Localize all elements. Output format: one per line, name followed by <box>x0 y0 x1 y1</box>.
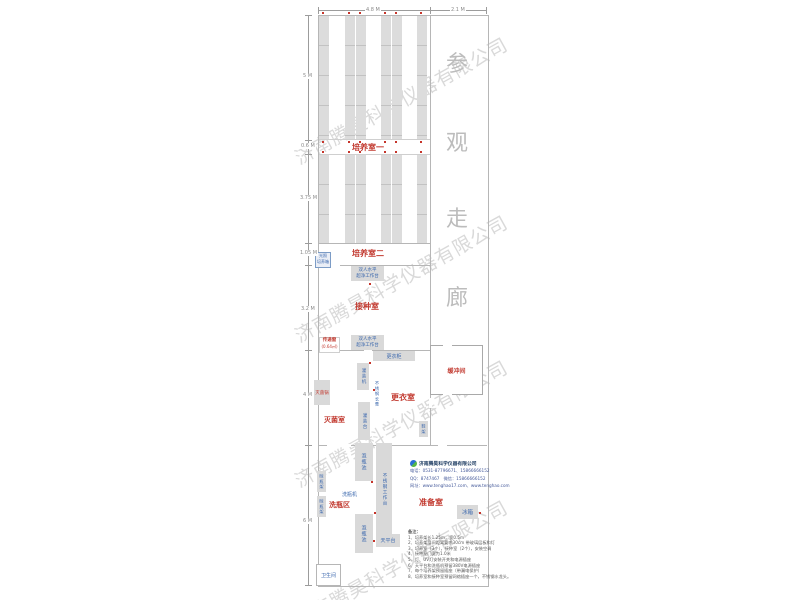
sterilizer-box: 灭菌锅 <box>314 380 330 405</box>
room-label-washing-area: 洗瓶区 <box>329 500 350 510</box>
culture-rack <box>381 155 391 243</box>
clean-bench-box: 双人水平 超净工作台 <box>351 335 384 350</box>
dimension-label-left: 4 M <box>302 392 313 398</box>
dimension-label-top-main: 4.8 M <box>365 7 381 13</box>
drying-rack-box: 晾瓶架 <box>317 471 326 492</box>
marker-dot <box>373 540 375 542</box>
clean-bench-label: 超净工作台 <box>356 274 379 280</box>
dimension-label-left: 1.05 M <box>299 250 318 256</box>
dimension-tick <box>305 243 312 244</box>
corridor-title-char: 观 <box>446 125 468 157</box>
marker-dot <box>348 141 350 143</box>
transfer-window-area-label: (0.64㎡) <box>320 344 339 349</box>
corridor-title-char: 参 <box>446 46 468 78</box>
dimension-tick <box>305 585 312 586</box>
dimension-label-left: 5 M <box>302 73 313 79</box>
marker-dot <box>322 141 324 143</box>
company-name: 济南腾昊科学仪器有限公司 <box>419 460 477 467</box>
filling-table-label: 灌装台 <box>361 413 367 430</box>
floor-plan-canvas: 济南腾昊科学仪器有限公司 济南腾昊科学仪器有限公司 济南腾昊科学仪器有限公司 济… <box>0 0 800 600</box>
dimension-tick <box>486 7 487 14</box>
room-label-inoculation-room: 接种室 <box>355 301 379 312</box>
culture-rack <box>319 155 329 243</box>
culture-rack <box>417 155 427 243</box>
dimension-tick <box>318 7 319 14</box>
dimension-tick <box>305 265 312 266</box>
soak-pool-label: 泡瓶池 <box>361 525 368 543</box>
dimension-tick <box>305 350 312 351</box>
door-opening <box>327 444 351 447</box>
company-qq: QQ：8747467 微信：15866666152 <box>410 475 510 483</box>
marker-dot <box>395 12 397 14</box>
marker-dot <box>420 141 422 143</box>
culture-rack <box>345 16 355 139</box>
corridor-title-char: 廊 <box>446 280 468 312</box>
drying-rack-box: 晾瓶架 <box>317 496 326 517</box>
soak-pool-box: 泡瓶池 <box>355 514 373 553</box>
marker-dot <box>322 12 324 14</box>
balance-table-label: 天平台 <box>380 537 395 544</box>
dimension-label-top-corridor: 2.1 M <box>450 7 466 13</box>
marker-dot <box>384 151 386 153</box>
filling-machine-label: 灌装机 <box>360 368 366 385</box>
culture-rack <box>345 155 355 243</box>
dimension-label-left: 3.75 M <box>299 195 318 201</box>
filling-machine-box: 灌装机 <box>357 363 369 390</box>
light-incubator-label: 培养箱 <box>316 259 330 264</box>
clean-bench-label: 超净工作台 <box>356 343 379 349</box>
marker-dot <box>369 362 371 364</box>
ss-worktable-label: 不锈钢工作台 <box>381 473 387 506</box>
door-opening <box>443 344 452 347</box>
culture-rack <box>356 16 366 139</box>
notes-block: 备注： 1、培养架长1.25m，宽0.5m 2、培养架层间距离要求30cm 带玻… <box>408 529 511 579</box>
ss-worktable-box: 不锈钢工作台 <box>376 443 392 535</box>
dimension-label-left: 6 M <box>302 518 313 524</box>
room-label-prep-room: 准备室 <box>419 497 443 508</box>
marker-dot <box>395 141 397 143</box>
culture-rack <box>381 16 391 139</box>
note-item: 8、培养室和接种室预留网络插座一个，不锈钢水龙头。 <box>408 574 511 580</box>
marker-dot <box>348 151 350 153</box>
dimension-label-left: 0.6 M <box>300 143 316 149</box>
dimension-tick <box>305 445 312 446</box>
door-opening <box>330 264 340 267</box>
aisle-line <box>319 154 430 155</box>
door-opening <box>429 398 432 408</box>
dimension-tick <box>305 154 312 155</box>
dimension-tick <box>305 140 312 141</box>
marker-dot <box>384 141 386 143</box>
door-opening <box>443 392 452 395</box>
clean-bench-box: 双人水平 超净工作台 <box>351 266 384 281</box>
toilet-label: 卫生间 <box>321 572 336 579</box>
company-web: 网址：www.tenghao17.com、www.tenghao.com <box>410 482 510 490</box>
ss-bench-label: 不锈钢长凳 <box>374 381 380 407</box>
dimension-tick <box>305 15 312 16</box>
dimension-label-left: 3.2 M <box>300 306 316 312</box>
culture-rack <box>319 16 329 139</box>
culture-rack <box>356 155 366 243</box>
fridge-box: 冰箱 <box>457 505 478 519</box>
toilet-box: 卫生间 <box>316 564 341 586</box>
culture-rack <box>392 16 402 139</box>
shoe-rack-label: 鞋架 <box>421 424 427 434</box>
dimension-line-left <box>308 15 309 585</box>
room-label-culture-room-2: 培养室二 <box>352 248 384 259</box>
buffer-room-box: 缓冲间 <box>430 345 483 395</box>
marker-dot <box>369 283 371 285</box>
shoe-rack-box: 鞋架 <box>419 421 428 437</box>
wardrobe-box: 更衣柜 <box>373 351 415 361</box>
soak-pool-box: 泡瓶池 <box>355 443 373 481</box>
soak-pool-label: 泡瓶池 <box>361 453 368 471</box>
drying-rack-label: 晾瓶架 <box>319 474 325 490</box>
company-phone: 电话：0531-87796671、15866666152 <box>410 467 510 475</box>
aisle-line <box>319 139 430 140</box>
balance-table-box: 天平台 <box>376 534 400 547</box>
transfer-window-box: 传递窗 (0.64㎡) <box>319 337 340 353</box>
company-block: 济南腾昊科学仪器有限公司 电话：0531-87796671、1586666615… <box>410 460 510 490</box>
room-label-changing-room: 更衣室 <box>391 392 415 403</box>
marker-dot <box>348 12 350 14</box>
door-opening <box>438 444 447 447</box>
room-label-buffer-room: 缓冲间 <box>447 366 465 375</box>
culture-rack <box>392 155 402 243</box>
corridor-title-char: 走 <box>446 201 468 233</box>
culture-rack <box>417 16 427 139</box>
bottle-washer-label: 洗瓶机 <box>342 491 357 498</box>
marker-dot <box>371 481 373 483</box>
marker-dot <box>479 512 481 514</box>
filling-table-box: 灌装台 <box>358 402 370 440</box>
company-logo-icon <box>410 460 417 467</box>
dimension-tick <box>430 7 431 14</box>
room-label-culture-room-1: 培养室一 <box>352 142 384 153</box>
marker-dot <box>395 151 397 153</box>
ss-bench: 不锈钢长凳 <box>374 381 380 417</box>
marker-dot <box>322 151 324 153</box>
sterilizer-label: 灭菌锅 <box>315 390 329 396</box>
room-label-sterilization-room: 灭菌室 <box>324 415 345 425</box>
marker-dot <box>384 12 386 14</box>
wardrobe-label: 更衣柜 <box>386 353 401 360</box>
marker-dot <box>359 12 361 14</box>
drying-rack-label: 晾瓶架 <box>319 499 325 515</box>
wall-culture2-top <box>319 243 430 244</box>
fridge-label: 冰箱 <box>462 508 473 516</box>
marker-dot <box>420 151 422 153</box>
marker-dot <box>420 12 422 14</box>
